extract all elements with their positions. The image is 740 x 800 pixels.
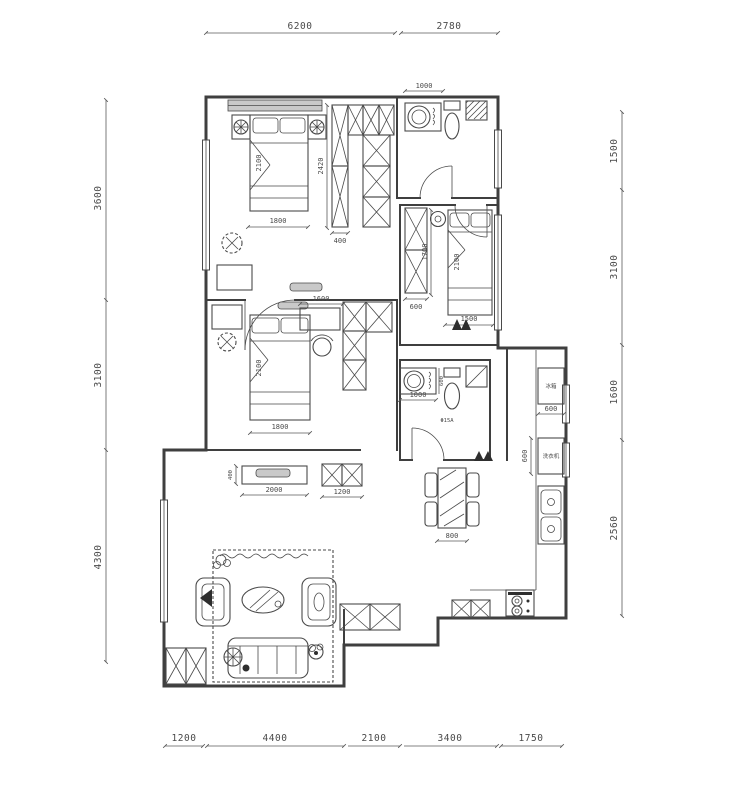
door-bathroom2 <box>412 428 444 460</box>
closet: 2420 400 <box>317 105 394 245</box>
plant-icon <box>216 555 226 565</box>
kitchen-sink-icon <box>538 486 564 544</box>
pillow <box>253 118 278 133</box>
dim-right-1: 1500 <box>609 139 620 164</box>
dimension-right: 1500 3100 1600 2560 <box>609 112 622 616</box>
dimension-left: 3600 3100 4300 <box>93 100 106 662</box>
bedroom-2: 600 1700 2100 1500 <box>405 208 493 325</box>
dim-fridge-width: 600 <box>545 405 558 413</box>
kitchen: 冰箱 600 洗衣机 600 <box>470 350 564 616</box>
pillow <box>280 118 305 133</box>
dimension-top: 6200 2780 <box>206 21 498 33</box>
dim-bed2-wardrobe: 600 <box>410 303 423 311</box>
door-bathroom1 <box>420 166 452 198</box>
sink-icon <box>404 371 424 391</box>
dim-bottom-4: 3400 <box>438 733 463 744</box>
bath2-note: Φ15A <box>440 418 454 424</box>
dim-closet-height: 2420 <box>317 158 325 175</box>
chair <box>467 473 479 497</box>
dim-bottom-1: 1200 <box>172 733 197 744</box>
dim-left-2: 3100 <box>93 363 104 388</box>
toilet-icon <box>445 383 460 409</box>
sideboard-cabinet <box>340 604 400 630</box>
dim-right-4: 2560 <box>609 516 620 541</box>
rug <box>213 550 333 682</box>
dim-bath1-vanity: 1000 <box>416 82 433 90</box>
dim-bed2-width: 1500 <box>461 315 478 323</box>
fridge-label: 冰箱 <box>545 382 557 390</box>
dresser <box>217 265 252 290</box>
dim-bed1-length: 2100 <box>255 155 263 172</box>
dim-left-1: 3600 <box>93 186 104 211</box>
dim-top-1: 6200 <box>288 21 313 32</box>
coffee-table <box>242 587 284 613</box>
dining-table <box>438 468 466 528</box>
pillow <box>252 318 279 333</box>
dim-shoe-cabinet-width: 1200 <box>334 488 351 496</box>
dim-bed2-length: 2100 <box>453 254 461 271</box>
dimension-bottom: 1200 4400 2100 3400 1750 <box>165 733 562 746</box>
bedroom-3: 1600 2100 1800 <box>212 295 392 433</box>
bedroom-1: 2100 1800 <box>217 115 326 291</box>
dim-bed2-side: 1700 <box>421 244 429 261</box>
armchair <box>302 578 336 626</box>
chair <box>425 473 437 497</box>
living-room: 2000 400 1200 <box>196 464 362 682</box>
entry-shoe-cabinet <box>452 600 490 618</box>
dim-right-3: 1600 <box>609 380 620 405</box>
dim-left-3: 4300 <box>93 545 104 570</box>
pillow <box>450 213 469 227</box>
dim-top-2: 2780 <box>437 21 462 32</box>
toilet-icon <box>445 113 459 139</box>
dining-area: 800 <box>425 468 479 541</box>
toilet-tank <box>444 368 460 377</box>
dim-bed3-length: 2100 <box>255 360 263 377</box>
dim-bottom-3: 2100 <box>362 733 387 744</box>
dim-table-width: 800 <box>446 532 459 540</box>
dim-tv-cabinet-depth: 400 <box>228 470 234 480</box>
tv-icon <box>256 469 290 477</box>
dim-counter-depth: 600 <box>521 450 529 463</box>
chair <box>425 502 437 526</box>
dim-desk3-width: 1600 <box>313 295 330 303</box>
chair <box>467 502 479 526</box>
bathroom-1: 1000 <box>405 82 487 139</box>
sink-icon <box>408 106 430 128</box>
toilet-tank <box>444 101 460 110</box>
dim-bath2-vanity: 1000 <box>410 391 427 399</box>
balcony-cabinet <box>166 648 206 684</box>
level-marker-icon <box>474 451 484 461</box>
dim-bed3-width: 1800 <box>272 423 289 431</box>
bathroom-2: 1000 600 Φ15A <box>400 366 487 424</box>
dim-bottom-5: 1750 <box>519 733 544 744</box>
floor-plan-page: 6200 2780 3600 3100 4300 1500 3100 1600 … <box>0 0 740 800</box>
dim-bed1-width: 1800 <box>270 217 287 225</box>
desk <box>300 308 340 330</box>
pillow <box>281 318 308 333</box>
tv-icon <box>290 283 322 291</box>
dim-right-2: 3100 <box>609 255 620 280</box>
pillow <box>243 665 250 672</box>
dim-bottom-2: 4400 <box>263 733 288 744</box>
dresser <box>212 305 242 329</box>
chair <box>313 338 331 356</box>
washer-label: 洗衣机 <box>543 452 560 460</box>
stool <box>431 212 446 227</box>
dim-tv-cabinet-width: 2000 <box>266 486 283 494</box>
dim-closet-width: 400 <box>334 237 347 245</box>
floor-plan-canvas: 6200 2780 3600 3100 4300 1500 3100 1600 … <box>0 0 740 800</box>
level-marker-icon <box>483 451 493 461</box>
